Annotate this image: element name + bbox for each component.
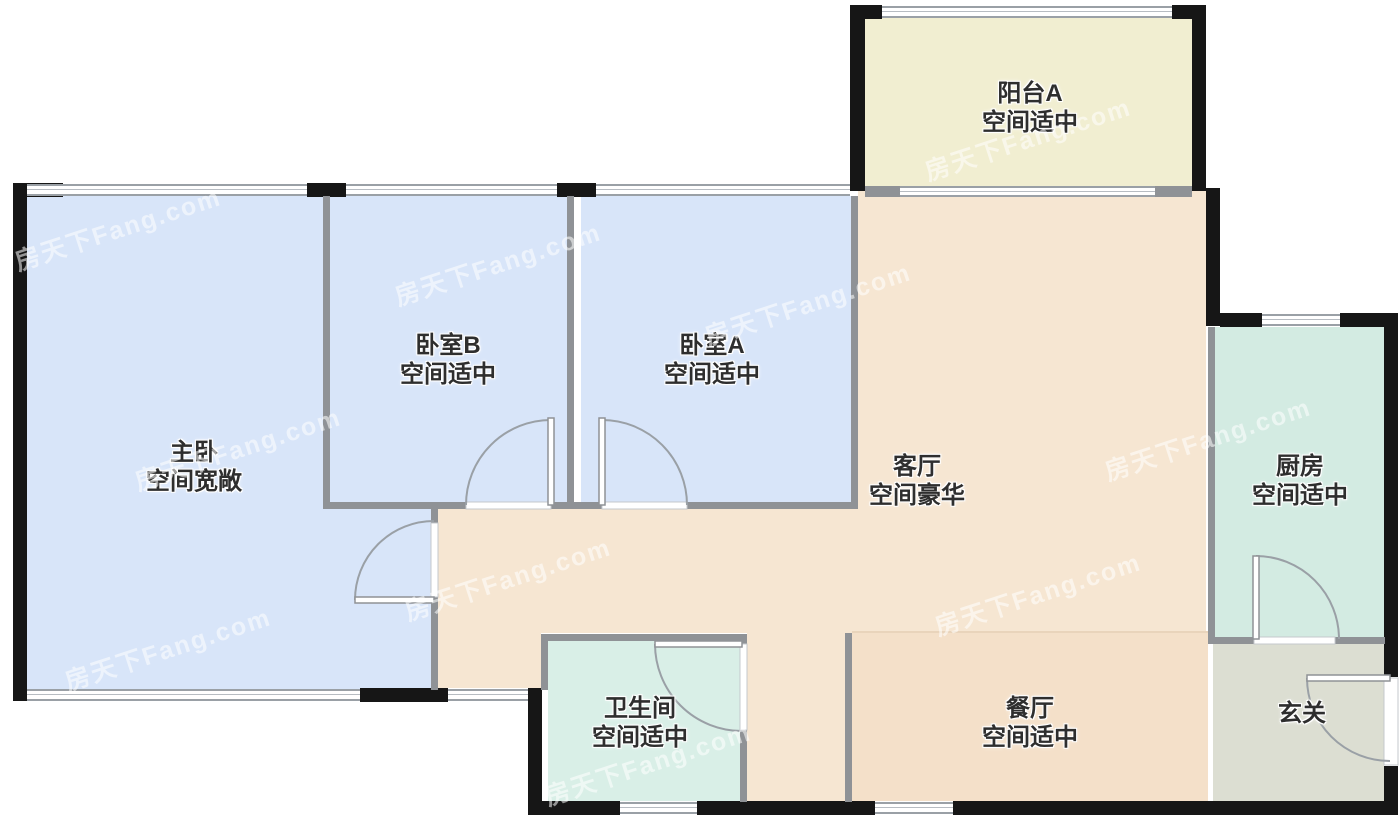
wall-master-right-upper — [431, 509, 438, 523]
wall-left — [13, 183, 27, 701]
balcony-slider-right-post — [1155, 186, 1192, 197]
wall-bedrooma-bottom-left — [574, 502, 602, 509]
room-label-foyer: 玄关 — [1227, 699, 1377, 728]
wall-bedroomb-bottom-left — [323, 502, 466, 509]
wall-bathroom-right-upper — [740, 634, 747, 644]
room-note: 空间适中 — [1224, 481, 1376, 510]
wall-bathroom-right-lower — [740, 730, 747, 802]
wall-balcony-left — [850, 5, 865, 191]
wall-corridor-dining — [845, 633, 852, 802]
room-name: 卫生间 — [540, 694, 740, 723]
wall-kitchen-bottom-right — [1335, 637, 1385, 644]
wall-top-block-2 — [557, 183, 596, 197]
room-label-bedroom-b: 卧室B 空间适中 — [348, 331, 548, 389]
room-note: 空间适中 — [930, 723, 1130, 752]
room-label-kitchen: 厨房 空间适中 — [1224, 452, 1376, 510]
window-dining-bottom — [875, 802, 953, 814]
room-label-dining-room: 餐厅 空间适中 — [930, 694, 1130, 752]
wall-kitchen-top-right — [1340, 313, 1398, 327]
room-label-master-bedroom: 主卧 空间宽敞 — [94, 438, 294, 496]
room-label-balcony-a: 阳台A 空间适中 — [930, 79, 1130, 137]
bathroom-corridor-floor — [747, 633, 845, 801]
wall-kitchen-bottom-left — [1208, 637, 1254, 644]
room-name: 餐厅 — [930, 694, 1130, 723]
wall-balcony-right — [1192, 5, 1206, 191]
window-kitchen-top — [1262, 314, 1340, 326]
window-balcony-top — [882, 6, 1172, 18]
room-note: 空间适中 — [930, 108, 1130, 137]
living-dining-divider — [852, 631, 1208, 633]
wall-bottom-mid — [697, 801, 875, 815]
room-label-bathroom: 卫生间 空间适中 — [540, 694, 740, 752]
room-name: 玄关 — [1227, 699, 1377, 728]
wall-balcony-top-left — [850, 5, 882, 19]
room-name: 阳台A — [930, 79, 1130, 108]
window-bedroom-b-top — [346, 184, 557, 196]
wall-bottom-left-block — [360, 688, 448, 702]
window-bedroom-a-top — [596, 184, 850, 196]
room-name: 卧室A — [612, 331, 812, 360]
window-bathroom-bottom — [620, 802, 697, 814]
wall-right-upper — [1384, 327, 1398, 677]
wall-bedroomb-bedrooma — [567, 196, 574, 509]
wall-kitchen-left — [1208, 327, 1215, 644]
wall-master-right-lower — [431, 597, 438, 690]
window-hallway-bottom — [448, 689, 528, 701]
wall-master-bedroomb — [323, 196, 330, 506]
room-note: 空间适中 — [612, 360, 812, 389]
hallway-floor — [438, 633, 541, 688]
window-master-bottom — [27, 689, 360, 701]
room-note: 空间适中 — [540, 723, 740, 752]
room-label-bedroom-a: 卧室A 空间适中 — [612, 331, 812, 389]
room-note: 空间宽敞 — [94, 467, 294, 496]
floor-plan: 阳台A 空间适中 卧室B 空间适中 卧室A 空间适中 主卧 空间宽敞 客厅 空间… — [0, 0, 1400, 815]
room-name: 卧室B — [348, 331, 548, 360]
wall-bathroom-top — [541, 634, 746, 641]
wall-top-block-1 — [307, 183, 346, 197]
wall-bottom-right — [953, 801, 1398, 815]
window-balcony-slider — [900, 186, 1155, 197]
wall-bathroom-left — [541, 641, 548, 690]
room-label-living-room: 客厅 空间豪华 — [817, 452, 1017, 510]
balcony-slider-left-post — [865, 186, 900, 197]
room-name: 主卧 — [94, 438, 294, 467]
room-note: 空间适中 — [348, 360, 548, 389]
room-name: 客厅 — [817, 452, 1017, 481]
living-room-floor — [858, 190, 1206, 631]
room-note: 空间豪华 — [817, 481, 1017, 510]
window-master-top — [27, 184, 307, 196]
wall-kitchen-top-left — [1220, 313, 1262, 327]
wall-living-right — [1206, 188, 1220, 326]
room-name: 厨房 — [1224, 452, 1376, 481]
living-room-floor-lower — [438, 509, 858, 633]
